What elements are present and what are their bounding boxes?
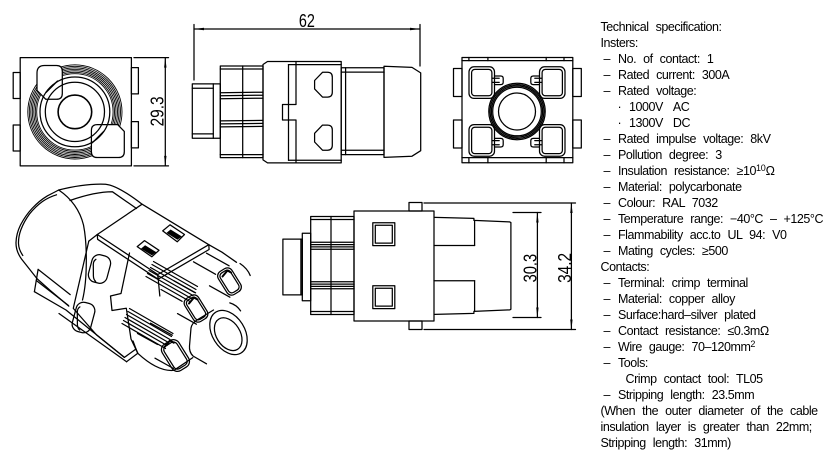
svg-text:29.3: 29.3	[148, 96, 168, 126]
svg-text:30.3: 30.3	[521, 254, 541, 283]
svg-text:34.2: 34.2	[555, 253, 575, 283]
svg-text:62: 62	[299, 11, 315, 31]
